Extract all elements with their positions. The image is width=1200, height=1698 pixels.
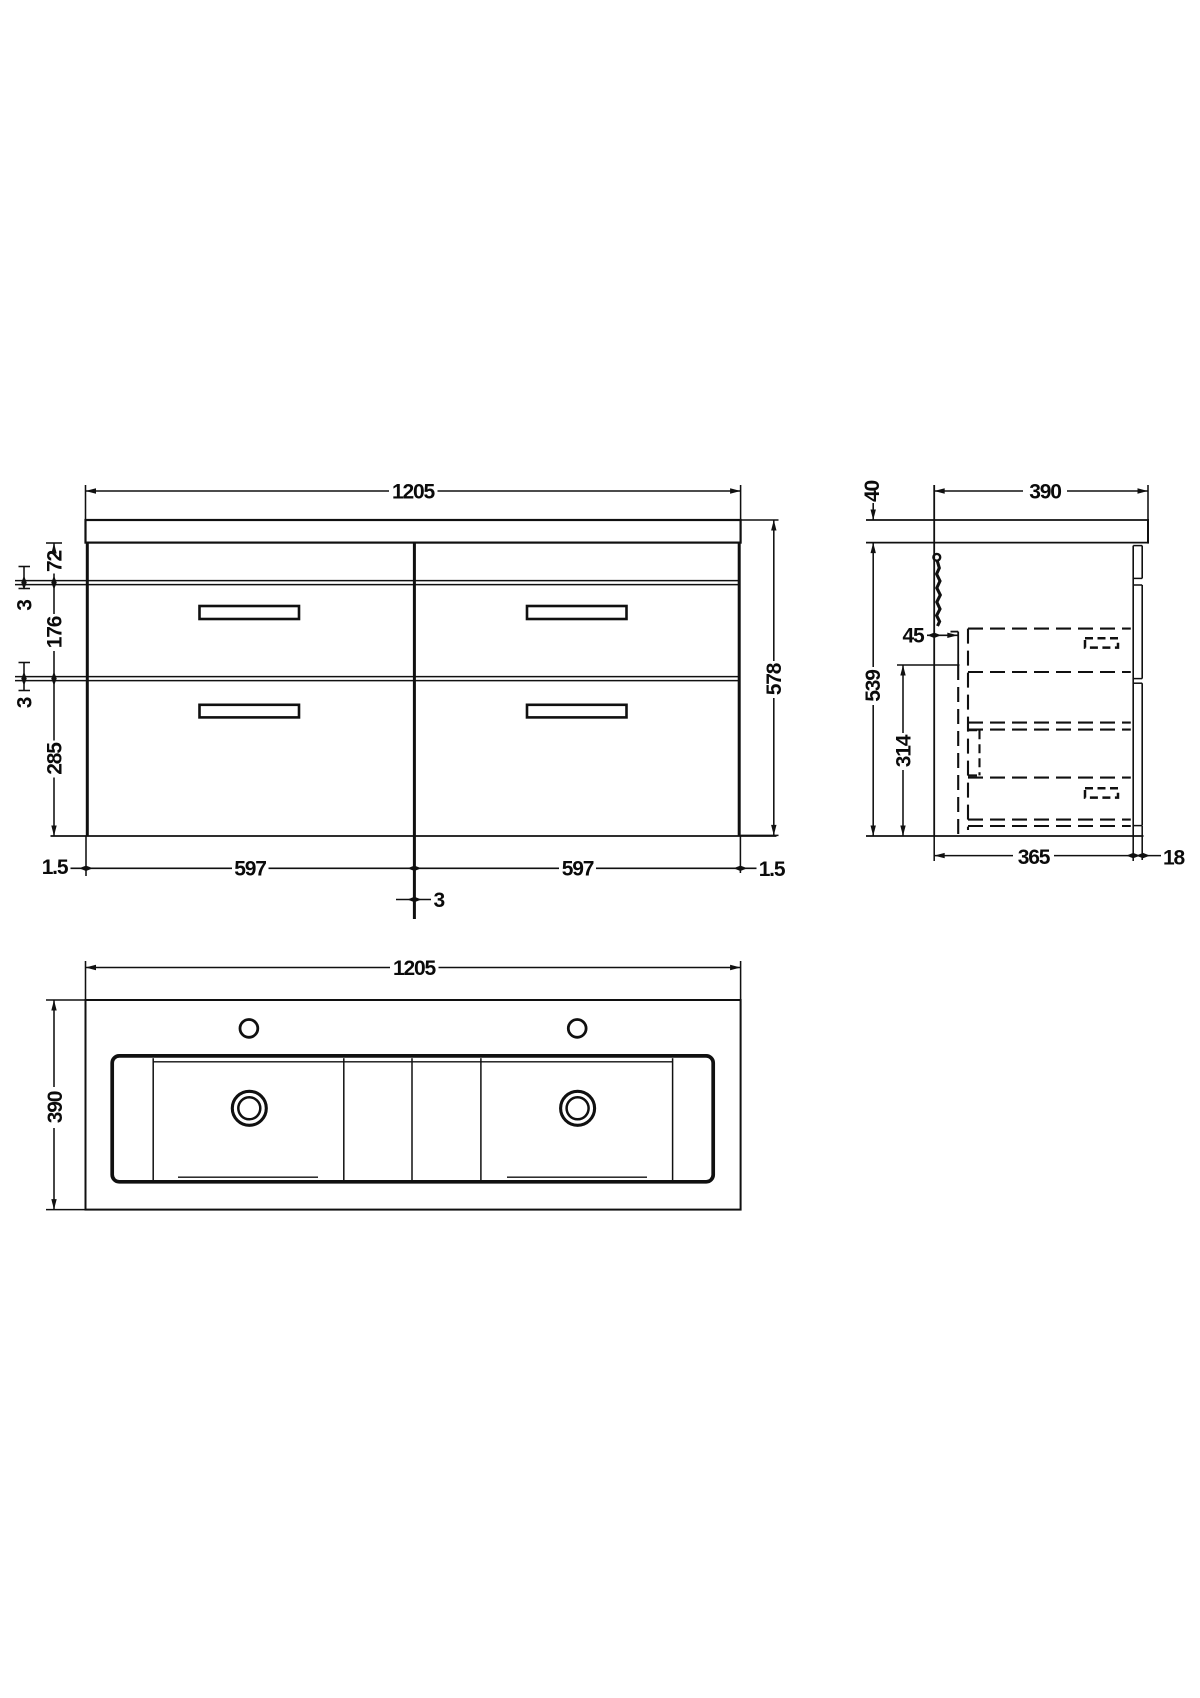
svg-text:72: 72 <box>43 551 66 572</box>
svg-text:365: 365 <box>1018 846 1051 869</box>
svg-text:314: 314 <box>892 734 915 767</box>
svg-text:3: 3 <box>434 889 445 912</box>
svg-text:578: 578 <box>763 662 786 695</box>
svg-text:1.5: 1.5 <box>759 858 786 881</box>
svg-text:45: 45 <box>903 625 925 648</box>
svg-text:40: 40 <box>861 481 884 502</box>
svg-text:3: 3 <box>13 697 36 708</box>
svg-text:597: 597 <box>234 858 266 881</box>
svg-text:1205: 1205 <box>392 480 435 503</box>
svg-text:390: 390 <box>44 1091 67 1123</box>
svg-text:176: 176 <box>43 616 66 648</box>
svg-text:1205: 1205 <box>393 957 436 980</box>
svg-text:1.5: 1.5 <box>42 856 69 879</box>
svg-text:285: 285 <box>43 742 66 775</box>
svg-text:597: 597 <box>562 858 594 881</box>
svg-text:3: 3 <box>13 600 36 611</box>
svg-text:390: 390 <box>1029 480 1061 503</box>
svg-text:539: 539 <box>862 670 885 702</box>
svg-text:18: 18 <box>1163 847 1185 870</box>
